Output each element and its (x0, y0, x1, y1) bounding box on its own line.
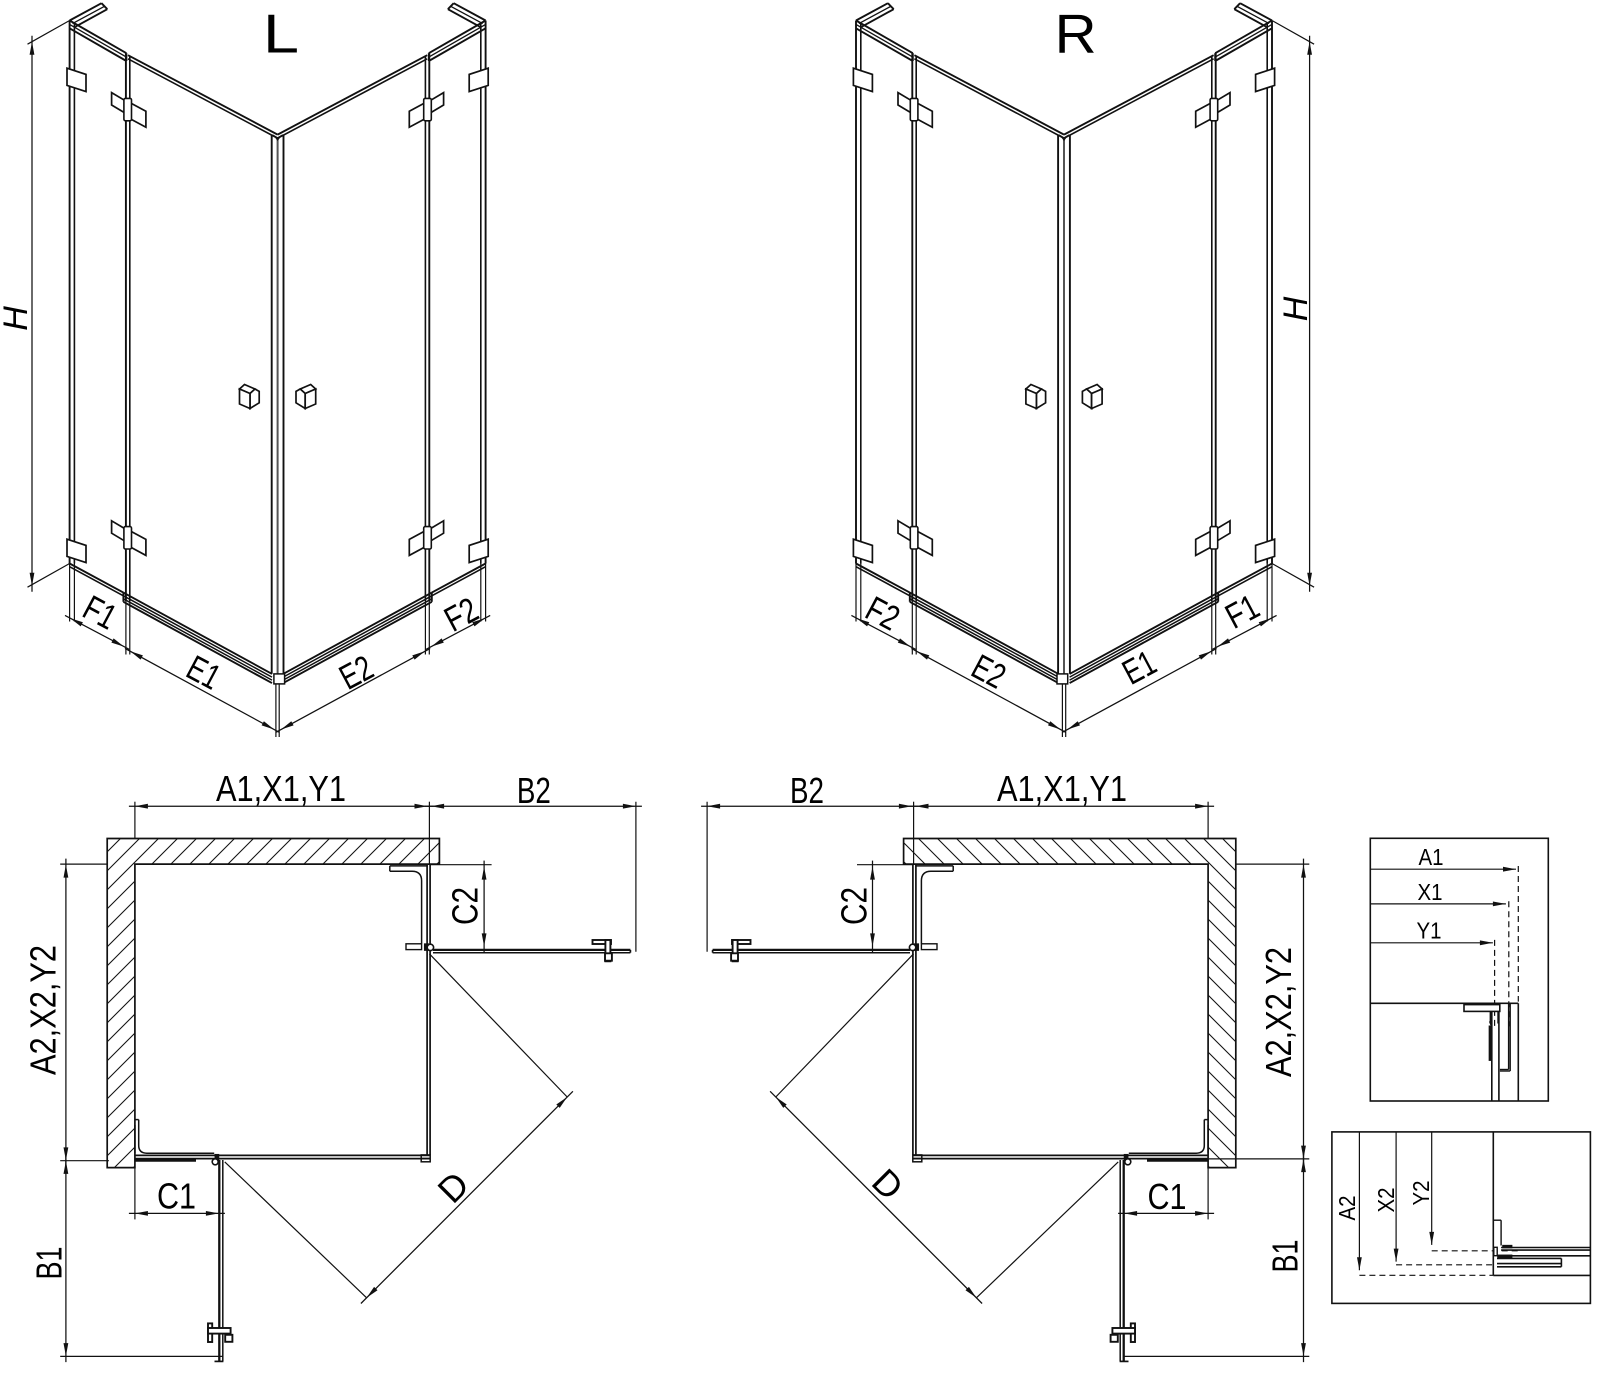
svg-text:A2,X2,Y2: A2,X2,Y2 (1258, 947, 1299, 1077)
svg-text:A2: A2 (1334, 1196, 1360, 1221)
svg-text:C1: C1 (157, 1175, 196, 1216)
svg-text:C1: C1 (1148, 1176, 1187, 1217)
svg-text:A1,X1,Y1: A1,X1,Y1 (997, 768, 1127, 809)
svg-text:C2: C2 (833, 887, 874, 925)
svg-text:B2: B2 (517, 770, 551, 811)
svg-text:X2: X2 (1373, 1188, 1399, 1213)
svg-text:H: H (0, 306, 35, 331)
svg-text:A1,X1,Y1: A1,X1,Y1 (216, 768, 346, 809)
svg-text:A1: A1 (1419, 844, 1444, 870)
svg-text:C2: C2 (445, 887, 486, 925)
svg-text:Y2: Y2 (1408, 1181, 1434, 1206)
svg-text:B2: B2 (790, 770, 824, 811)
svg-text:L: L (263, 3, 299, 65)
svg-text:R: R (1055, 3, 1097, 65)
svg-text:B1: B1 (28, 1247, 69, 1280)
svg-text:X1: X1 (1418, 879, 1443, 905)
svg-text:B1: B1 (1264, 1240, 1305, 1273)
svg-text:H: H (1277, 296, 1315, 321)
svg-text:A2,X2,Y2: A2,X2,Y2 (22, 945, 63, 1075)
svg-text:Y1: Y1 (1417, 918, 1442, 944)
